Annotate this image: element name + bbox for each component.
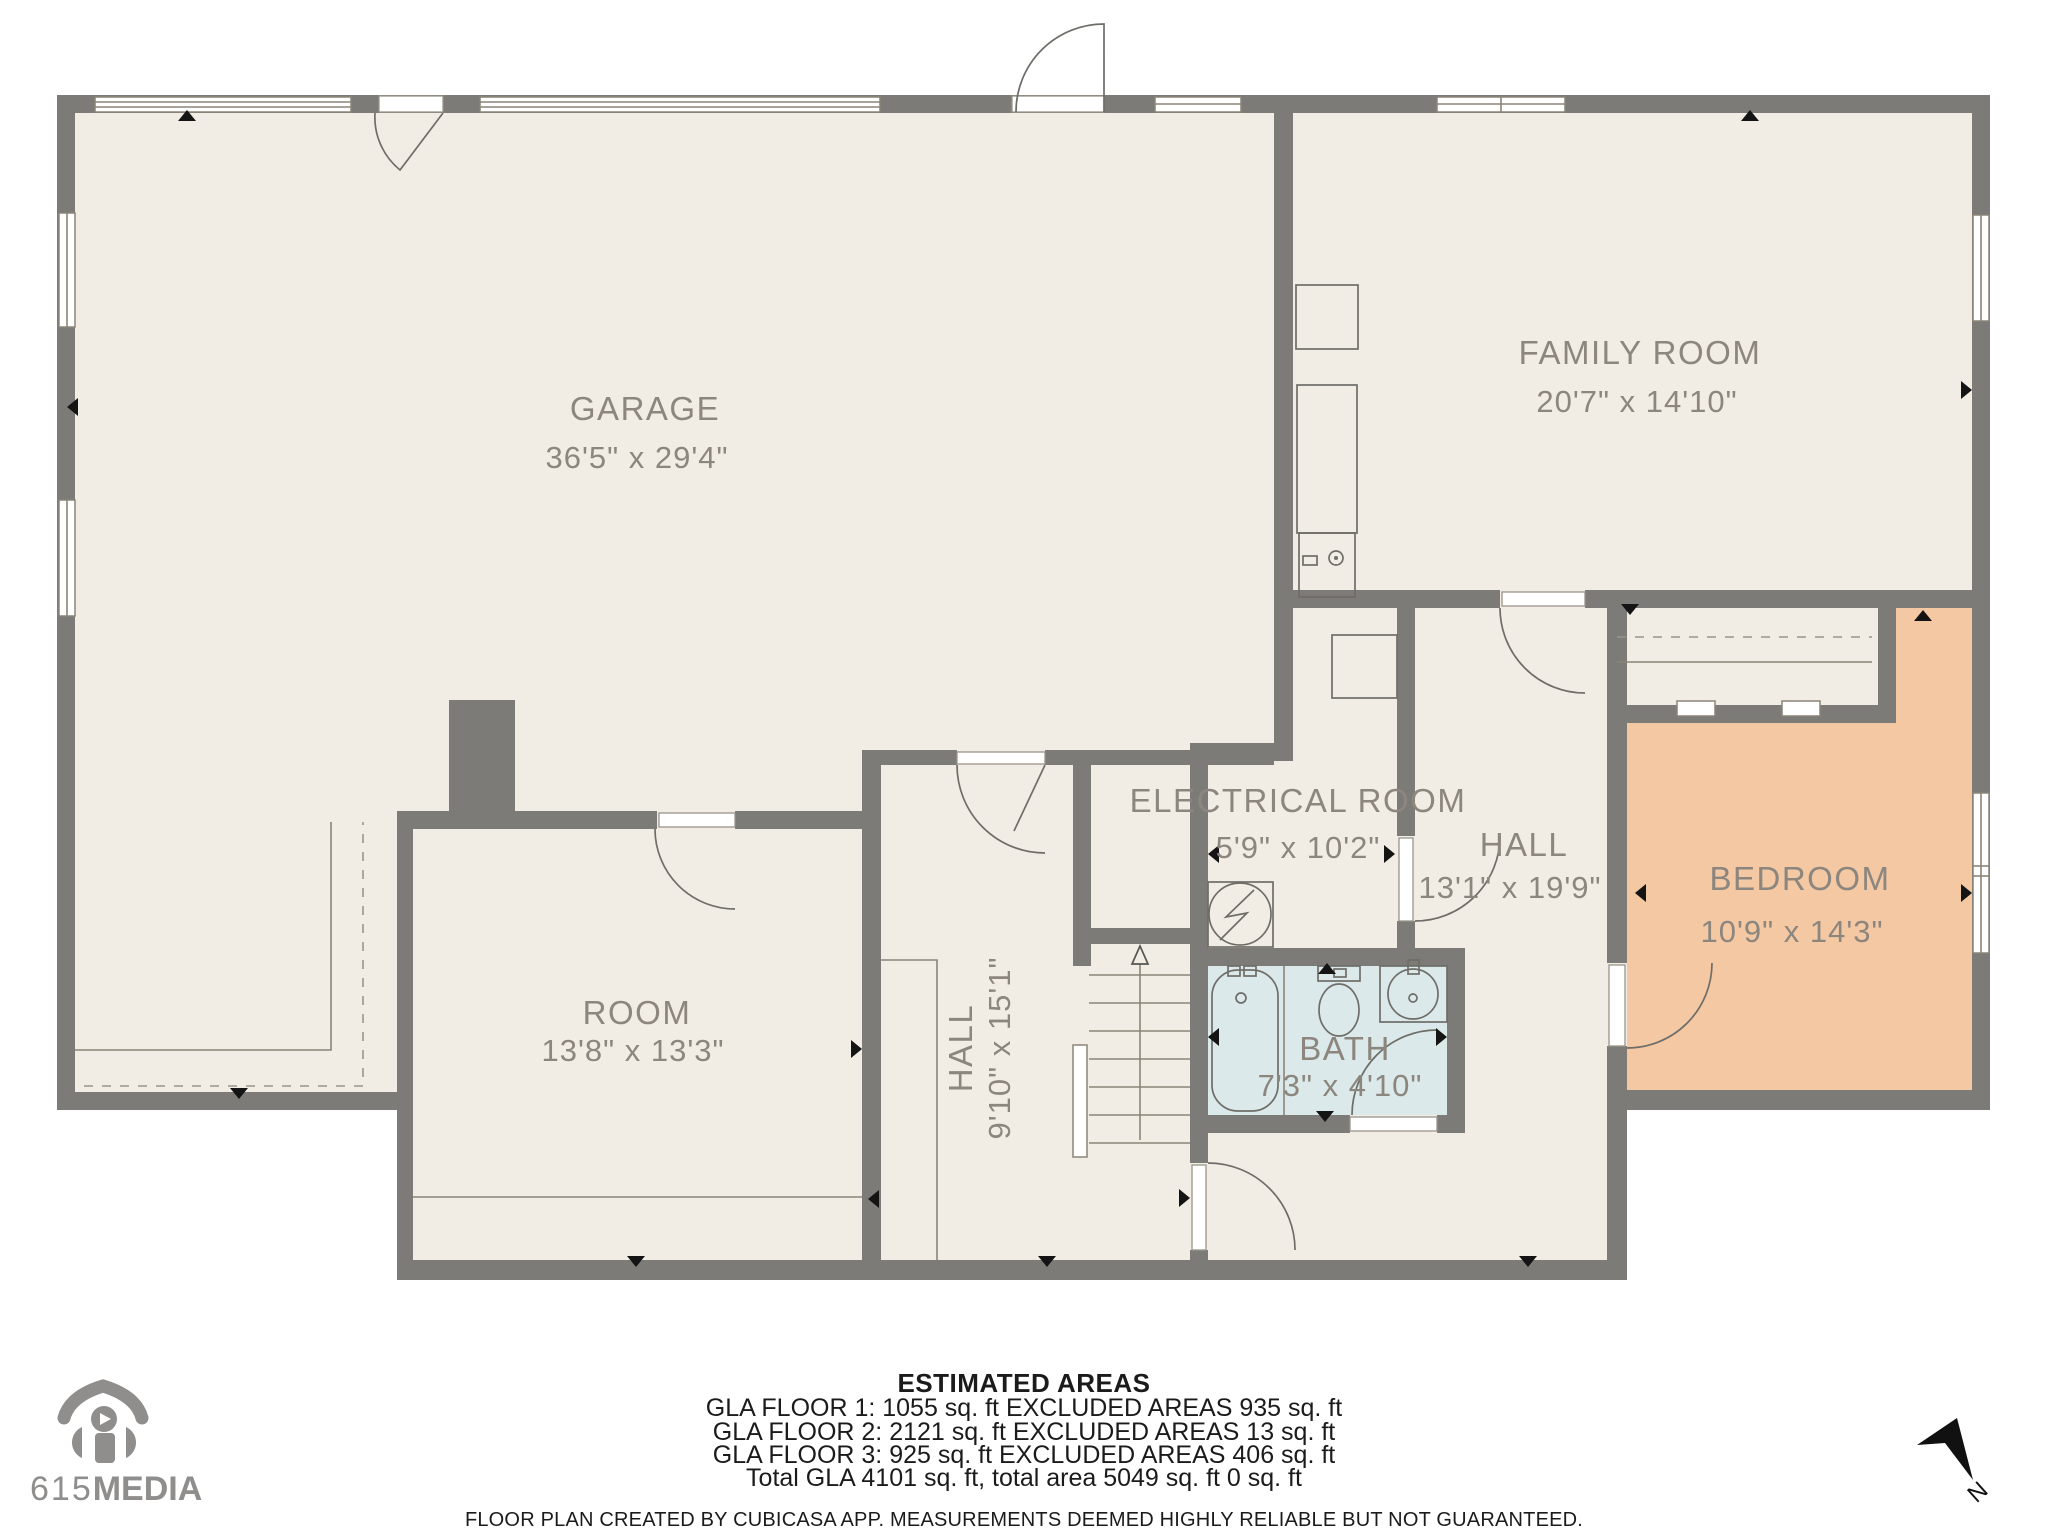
- room-dims: 9'10" x 15'1": [982, 956, 1017, 1139]
- closet-slider-icon: [1782, 701, 1820, 716]
- compass: N: [1917, 1418, 1993, 1508]
- room-dims: 10'9" x 14'3": [1700, 914, 1883, 949]
- window-icon: [59, 213, 75, 327]
- stair-railing: [1073, 1045, 1087, 1157]
- disclaimer-text: FLOOR PLAN CREATED BY CUBICASA APP. MEAS…: [465, 1509, 1583, 1531]
- bedroom-area: [1627, 723, 1972, 1090]
- floor-plan-page: GARAGE 36'5" x 29'4" FAMILY ROOM 20'7" x…: [0, 0, 2048, 1536]
- floor-plan-svg: GARAGE 36'5" x 29'4" FAMILY ROOM 20'7" x…: [0, 0, 2048, 1536]
- logo-wordmark: 615MEDIA: [30, 1470, 202, 1508]
- window-icon: [95, 97, 351, 112]
- logo-text-light: 615: [30, 1470, 93, 1508]
- room-dims: 5'9" x 10'2": [1216, 830, 1381, 865]
- room-name: HALL: [1480, 826, 1569, 863]
- room-dims: 13'1" x 19'9": [1418, 870, 1601, 905]
- room-name: GARAGE: [570, 390, 720, 427]
- window-icon: [1973, 793, 1989, 953]
- room-name: BEDROOM: [1709, 860, 1890, 897]
- north-arrow-icon: [1917, 1418, 1973, 1480]
- logo-house-icon: [64, 1386, 142, 1463]
- room-dims: 20'7" x 14'10": [1536, 384, 1737, 419]
- bedroom-area-strip: [1896, 608, 1972, 723]
- window-icon: [480, 97, 880, 112]
- room-name: ROOM: [583, 994, 692, 1031]
- gla-total: Total GLA 4101 sq. ft, total area 5049 s…: [746, 1464, 1302, 1492]
- window-icon: [59, 500, 75, 616]
- brand-logo: 615MEDIA: [30, 1386, 202, 1508]
- window-icon: [1973, 215, 1989, 321]
- room-name: ELECTRICAL ROOM: [1130, 782, 1467, 819]
- room-name: BATH: [1299, 1030, 1391, 1067]
- room-dims: 13'8" x 13'3": [541, 1033, 724, 1068]
- room-dims: 36'5" x 29'4": [545, 440, 728, 475]
- room-name: FAMILY ROOM: [1519, 334, 1762, 371]
- closet-slider-icon: [1677, 701, 1715, 716]
- door-icon: [1012, 24, 1104, 112]
- room-name: HALL: [942, 1004, 979, 1093]
- room-dims: 7'3" x 4'10": [1258, 1068, 1423, 1103]
- window-icon: [1437, 97, 1565, 112]
- window-icon: [1155, 97, 1241, 112]
- north-label: N: [1963, 1477, 1994, 1509]
- logo-text-bold: MEDIA: [93, 1470, 203, 1508]
- estimated-areas-block: ESTIMATED AREAS GLA FLOOR 1: 1055 sq. ft…: [465, 1368, 1583, 1531]
